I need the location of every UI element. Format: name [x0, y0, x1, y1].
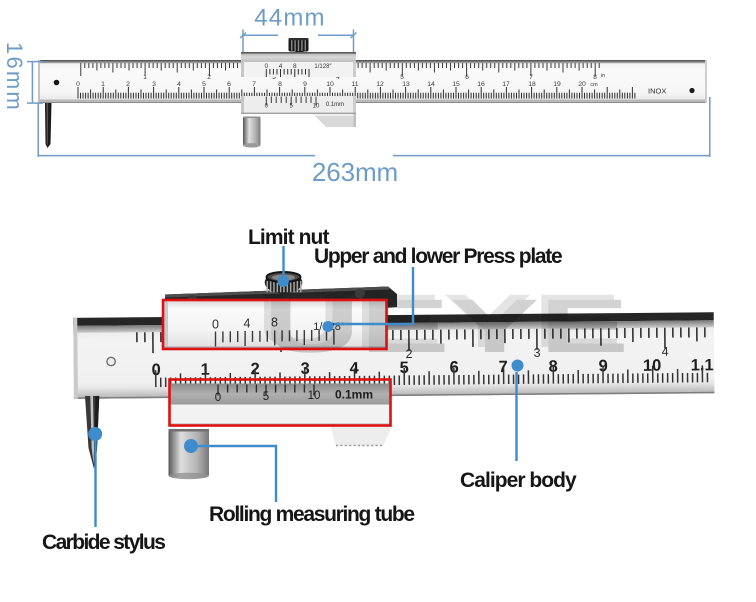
svg-text:1/128″: 1/128″ [314, 64, 332, 70]
svg-text:2: 2 [126, 81, 130, 88]
svg-text:11: 11 [351, 81, 358, 88]
svg-text:4: 4 [244, 317, 251, 331]
svg-text:3: 3 [152, 81, 156, 88]
svg-text:0.1mm: 0.1mm [335, 388, 373, 402]
svg-text:5: 5 [202, 81, 206, 88]
svg-text:INOX: INOX [648, 87, 666, 96]
svg-text:7: 7 [529, 74, 533, 81]
svg-text:8: 8 [278, 81, 282, 88]
svg-text:Upper and lower Press plate: Upper and lower Press plate [314, 245, 562, 268]
svg-text:Carbide stylus: Carbide stylus [42, 531, 165, 554]
svg-text:14: 14 [427, 81, 435, 88]
svg-text:7: 7 [252, 81, 256, 88]
svg-text:2: 2 [207, 74, 211, 81]
svg-text:1: 1 [101, 81, 105, 88]
svg-text:1: 1 [143, 74, 147, 81]
svg-text:0: 0 [76, 81, 80, 88]
svg-text:44mm: 44mm [254, 5, 325, 32]
svg-text:0: 0 [212, 318, 219, 332]
svg-text:19: 19 [553, 81, 561, 88]
svg-text:0.1mm: 0.1mm [326, 102, 344, 108]
svg-text:9: 9 [303, 81, 307, 88]
svg-text:12: 12 [376, 81, 384, 88]
svg-text:0: 0 [215, 392, 221, 404]
svg-text:13: 13 [402, 81, 410, 88]
svg-text:UEYE: UEYE [263, 284, 629, 369]
svg-text:10: 10 [313, 104, 320, 110]
svg-text:5: 5 [263, 391, 269, 403]
svg-text:4: 4 [279, 63, 283, 70]
svg-text:10: 10 [308, 390, 321, 402]
svg-text:17: 17 [502, 81, 510, 88]
svg-text:6: 6 [227, 81, 231, 88]
svg-text:0: 0 [264, 63, 268, 70]
svg-text:4: 4 [661, 345, 668, 359]
svg-text:8: 8 [293, 63, 297, 70]
svg-text:16mm: 16mm [2, 42, 27, 112]
svg-text:20: 20 [578, 81, 586, 88]
svg-text:8: 8 [593, 74, 597, 81]
svg-text:Rolling measuring tube: Rolling measuring tube [209, 503, 414, 526]
svg-text:18: 18 [528, 81, 536, 88]
svg-text:10: 10 [326, 81, 334, 88]
svg-text:Caliper body: Caliper body [460, 469, 577, 492]
svg-text:16: 16 [477, 81, 485, 88]
svg-text:cm: cm [590, 82, 598, 88]
svg-text:15: 15 [452, 81, 460, 88]
svg-text:263mm: 263mm [312, 157, 398, 187]
svg-text:in: in [601, 73, 605, 79]
svg-text:6: 6 [465, 74, 469, 81]
svg-text:4: 4 [177, 81, 181, 88]
svg-text:5: 5 [400, 74, 404, 81]
